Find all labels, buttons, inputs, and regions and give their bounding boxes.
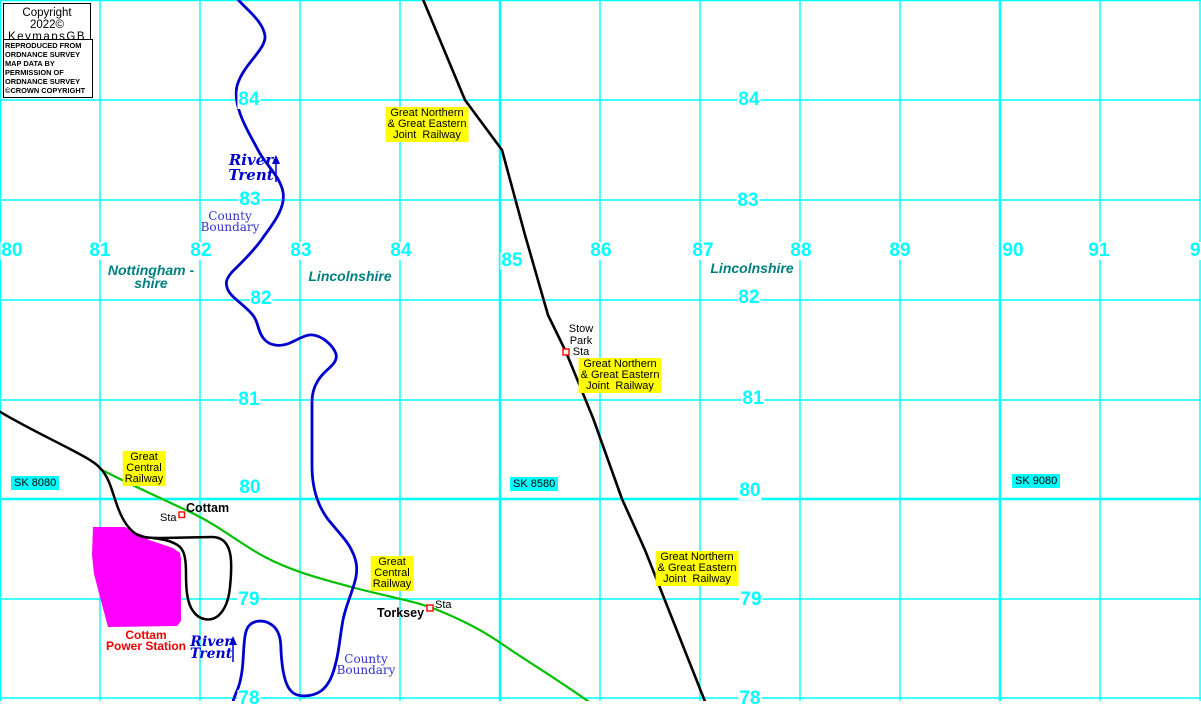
grid-easting-label: 83 — [289, 242, 312, 260]
gn-ge-joint-railway-label-south: Great Northern& Great EasternJoint Railw… — [656, 551, 739, 586]
label-line: Boundary — [337, 665, 396, 676]
grid-northing-label: 80 — [238, 479, 261, 497]
grid-easting-label: 88 — [789, 242, 812, 260]
gn-ge-joint-railway-label-north: Great Northern& Great EasternJoint Railw… — [386, 107, 469, 142]
station-marker-torksey — [427, 605, 433, 611]
sk-8580-label: SK 8580 — [510, 477, 558, 491]
copyright-line: Copyright 2022© — [4, 7, 90, 31]
cottam-station-sta: Sta — [160, 513, 177, 525]
label-line: Joint Railway — [658, 574, 737, 585]
grid-easting-label: 85 — [500, 252, 523, 270]
label-line: Stow — [569, 324, 593, 336]
grid-northing-label: 79 — [237, 591, 260, 609]
sk-8080-label: SK 8080 — [11, 476, 59, 490]
county-lincolnshire-label-east: Lincolnshire — [710, 262, 793, 275]
grid-easting-label: 89 — [888, 242, 911, 260]
grid-easting-label: 84 — [389, 242, 412, 260]
grid-easting-label: 80 — [0, 242, 23, 260]
attribution-box: REPRODUCED FROMORDNANCE SURVEYMAP DATA B… — [3, 39, 93, 98]
label-line: Railway — [125, 474, 164, 485]
grid-northing-label: 83 — [736, 192, 759, 210]
label-line: shire — [108, 277, 194, 290]
grid-northing-label: 82 — [737, 289, 760, 307]
stow-park-station-label: StowParkSta — [569, 324, 593, 359]
grid-northing-label: 84 — [237, 91, 260, 109]
torksey-station-sta: Sta — [435, 600, 452, 612]
label-line: Lincolnshire — [308, 270, 391, 283]
label-line: Power Station — [106, 641, 186, 652]
grid-northing-label: 80 — [738, 482, 761, 500]
grid-easting-label: 9 — [1189, 242, 1201, 260]
grid-northing-label: 83 — [238, 191, 261, 209]
grid-northing-label: 81 — [741, 390, 764, 408]
grid-northing-label: 84 — [737, 91, 760, 109]
grid-northing-label: 78 — [237, 690, 260, 708]
label-line: Railway — [373, 579, 412, 590]
river-trent-label-south: RiverTrent — [190, 636, 232, 660]
river-trent-label-north: RiverTrent — [228, 153, 273, 183]
grid-easting-label: 81 — [88, 242, 111, 260]
label-line: Sta — [435, 600, 452, 612]
grid-easting-label: 86 — [589, 242, 612, 260]
label-line: Joint Railway — [581, 381, 660, 392]
label-line: Lincolnshire — [710, 262, 793, 275]
county-boundary-label-south: CountyBoundary — [337, 654, 396, 676]
label-line: Trent — [228, 168, 273, 183]
label-line: Torksey — [377, 607, 424, 619]
great-central-railway-label-south: GreatCentralRailway — [371, 556, 414, 591]
cottam-power-station-label: CottamPower Station — [106, 630, 186, 651]
grid-northing-label: 78 — [738, 690, 761, 708]
map-geometry — [0, 0, 1201, 701]
label-line: SK 8080 — [14, 477, 56, 489]
grid-easting-label: 90 — [1001, 242, 1024, 260]
label-line: Sta — [569, 347, 593, 359]
label-line: SK 9080 — [1015, 475, 1057, 487]
map-canvas: 8081828384858687888990919848483838282818… — [0, 0, 1201, 701]
cottam-station-name: Cottam — [186, 502, 229, 514]
label-line: Sta — [160, 513, 177, 525]
grid-northing-label: 82 — [249, 290, 272, 308]
grid-northing-label: 81 — [237, 391, 260, 409]
torksey-station-name: Torksey — [377, 607, 424, 619]
label-line: Boundary — [201, 222, 260, 233]
grid-easting-label: 87 — [691, 242, 714, 260]
attribution-line: ©CROWN COPYRIGHT — [5, 87, 91, 96]
grid-easting-label: 91 — [1087, 242, 1110, 260]
county-nottinghamshire-label: Nottingham -shire — [108, 264, 194, 290]
station-marker-cottam — [179, 512, 185, 518]
label-line: Cottam — [186, 502, 229, 514]
gn-ge-joint-railway-label-mid: Great Northern& Great EasternJoint Railw… — [579, 358, 662, 393]
great-central-railway-label-north: GreatCentralRailway — [123, 451, 166, 486]
grid-easting-label: 82 — [189, 242, 212, 260]
grid-northing-label: 79 — [739, 591, 762, 609]
label-line: Trent — [190, 648, 232, 660]
sk-9080-label: SK 9080 — [1012, 474, 1060, 488]
label-line: Joint Railway — [388, 130, 467, 141]
county-lincolnshire-label-west: Lincolnshire — [308, 270, 391, 283]
label-line: SK 8580 — [513, 478, 555, 490]
county-boundary-label-north: CountyBoundary — [201, 211, 260, 233]
